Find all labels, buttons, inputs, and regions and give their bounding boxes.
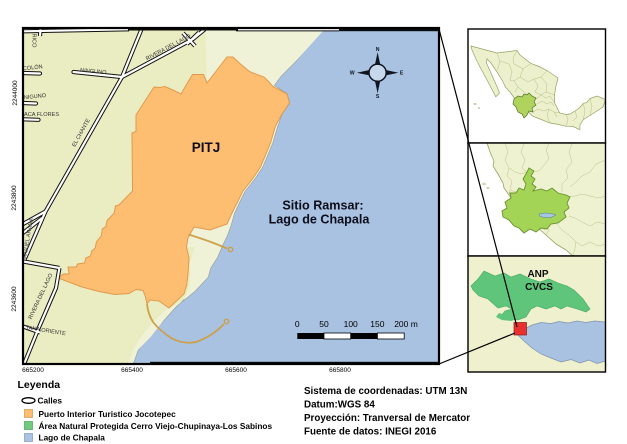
svg-text:S: S (376, 94, 380, 100)
svg-text:CVCS: CVCS (525, 282, 553, 293)
svg-text:Calles: Calles (38, 396, 63, 406)
svg-text:ANP: ANP (527, 269, 548, 280)
svg-text:Lago de Chapala: Lago de Chapala (269, 213, 371, 227)
svg-text:Puerto Interior Turistico Joco: Puerto Interior Turistico Jocotepec (39, 409, 177, 419)
svg-text:RICO: RICO (31, 34, 37, 49)
svg-text:E: E (400, 71, 404, 77)
svg-text:Sistema de coordenadas: UTM 13: Sistema de coordenadas: UTM 13N (304, 386, 467, 397)
svg-text:2243800: 2243800 (11, 185, 18, 211)
svg-text:50: 50 (319, 319, 329, 329)
svg-text:665800: 665800 (329, 367, 351, 374)
svg-text:Sitio Ramsar:: Sitio Ramsar: (282, 199, 363, 213)
svg-text:W: W (350, 71, 355, 77)
svg-text:200 m: 200 m (394, 319, 418, 329)
svg-text:2243600: 2243600 (11, 286, 18, 312)
svg-text:150: 150 (370, 319, 384, 329)
svg-text:PITJ: PITJ (192, 140, 221, 155)
svg-text:100: 100 (344, 319, 358, 329)
svg-text:665600: 665600 (225, 367, 247, 374)
svg-text:2244000: 2244000 (12, 80, 19, 106)
svg-text:0: 0 (295, 319, 300, 329)
svg-text:Proyección: Tranversal de Merc: Proyección: Tranversal de Mercator (304, 413, 470, 424)
svg-text:Datum:WGS 84: Datum:WGS 84 (304, 400, 375, 411)
svg-text:665200: 665200 (22, 367, 44, 374)
svg-text:665400: 665400 (121, 367, 143, 374)
svg-text:Leyenda: Leyenda (18, 379, 61, 391)
svg-text:Lago de Chapala: Lago de Chapala (39, 433, 106, 443)
svg-text:ACA FLORES: ACA FLORES (24, 112, 59, 118)
svg-text:Área Natural Protegida Cerro V: Área Natural Protegida Cerro Viejo-Chupi… (39, 421, 273, 431)
svg-text:Fuente de datos: INEGI 2016: Fuente de datos: INEGI 2016 (304, 427, 437, 438)
svg-text:N: N (376, 47, 380, 53)
